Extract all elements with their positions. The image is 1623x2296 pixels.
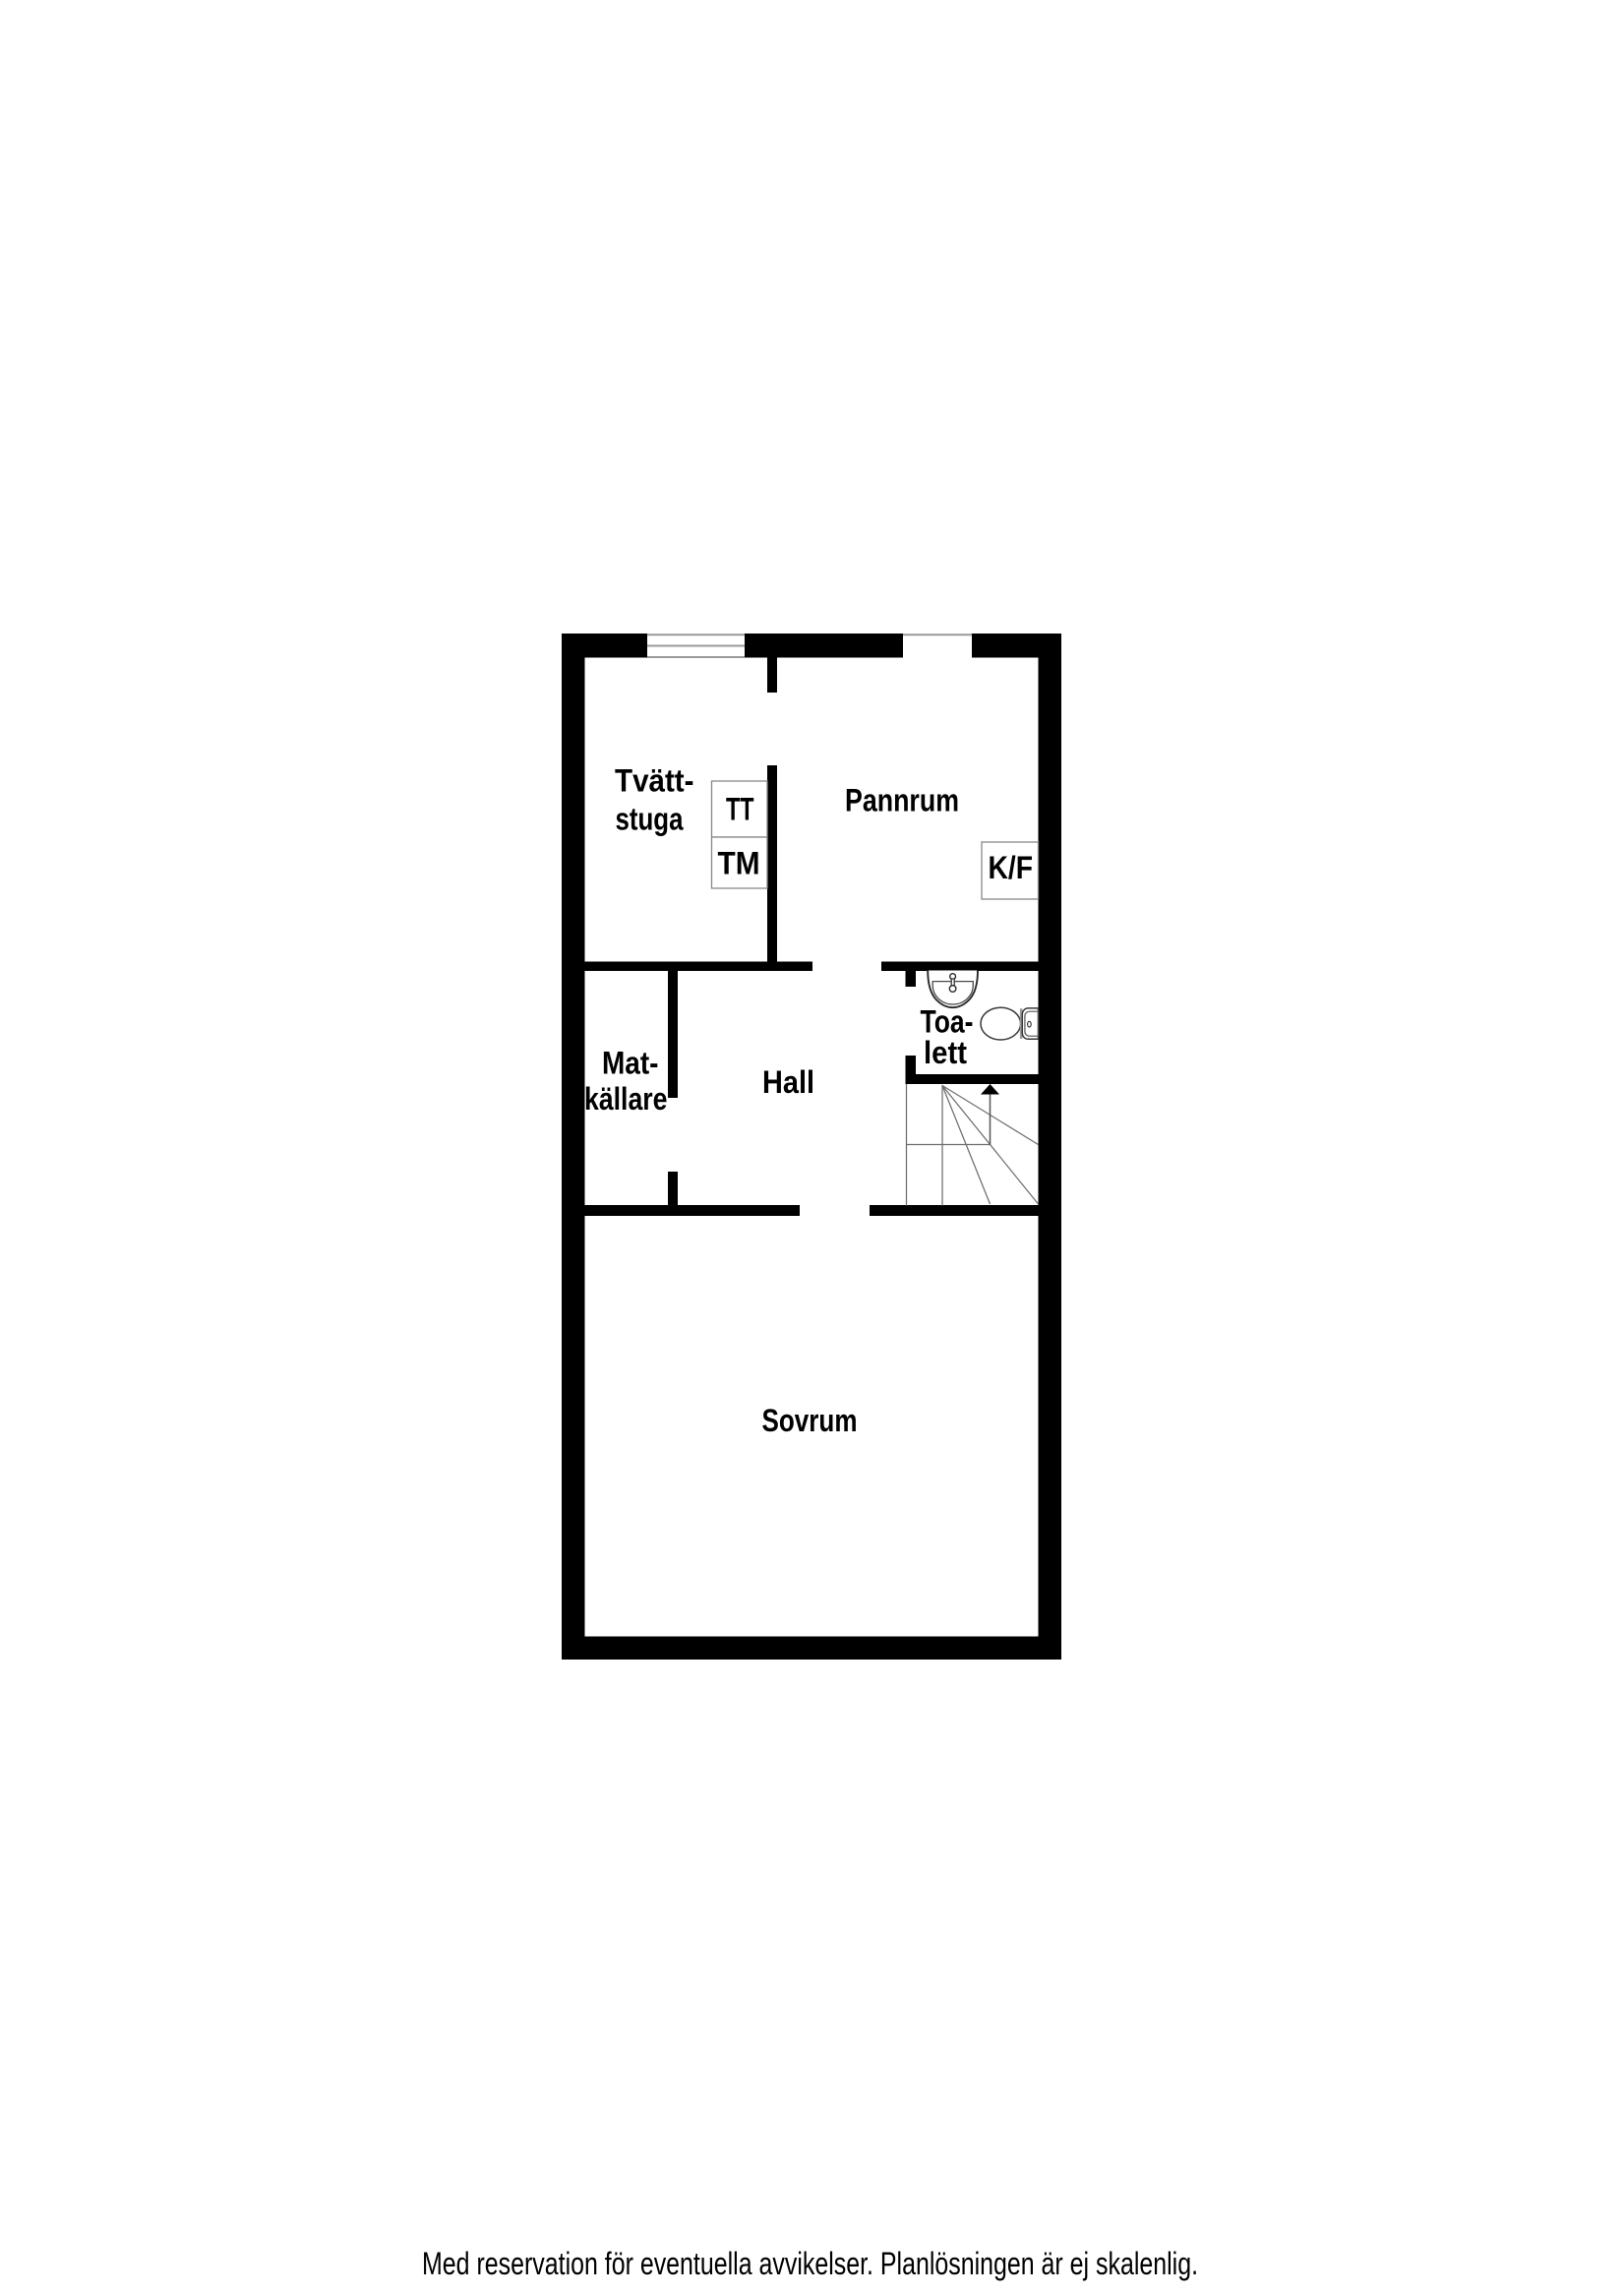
svg-text:Med reservation för eventuella: Med reservation för eventuella avvikelse… [422,2246,1198,2281]
svg-text:lett: lett [924,1035,967,1070]
svg-text:stuga: stuga [616,802,684,837]
svg-text:Pannrum: Pannrum [845,783,959,818]
svg-text:Tvätt-: Tvätt- [615,763,694,799]
svg-text:TM: TM [718,846,760,881]
svg-text:TT: TT [726,792,754,827]
svg-text:K/F: K/F [989,850,1034,885]
svg-text:Hall: Hall [762,1064,814,1100]
svg-text:källare: källare [584,1081,668,1117]
svg-text:Mat-: Mat- [602,1046,659,1081]
svg-text:Sovrum: Sovrum [762,1403,858,1438]
